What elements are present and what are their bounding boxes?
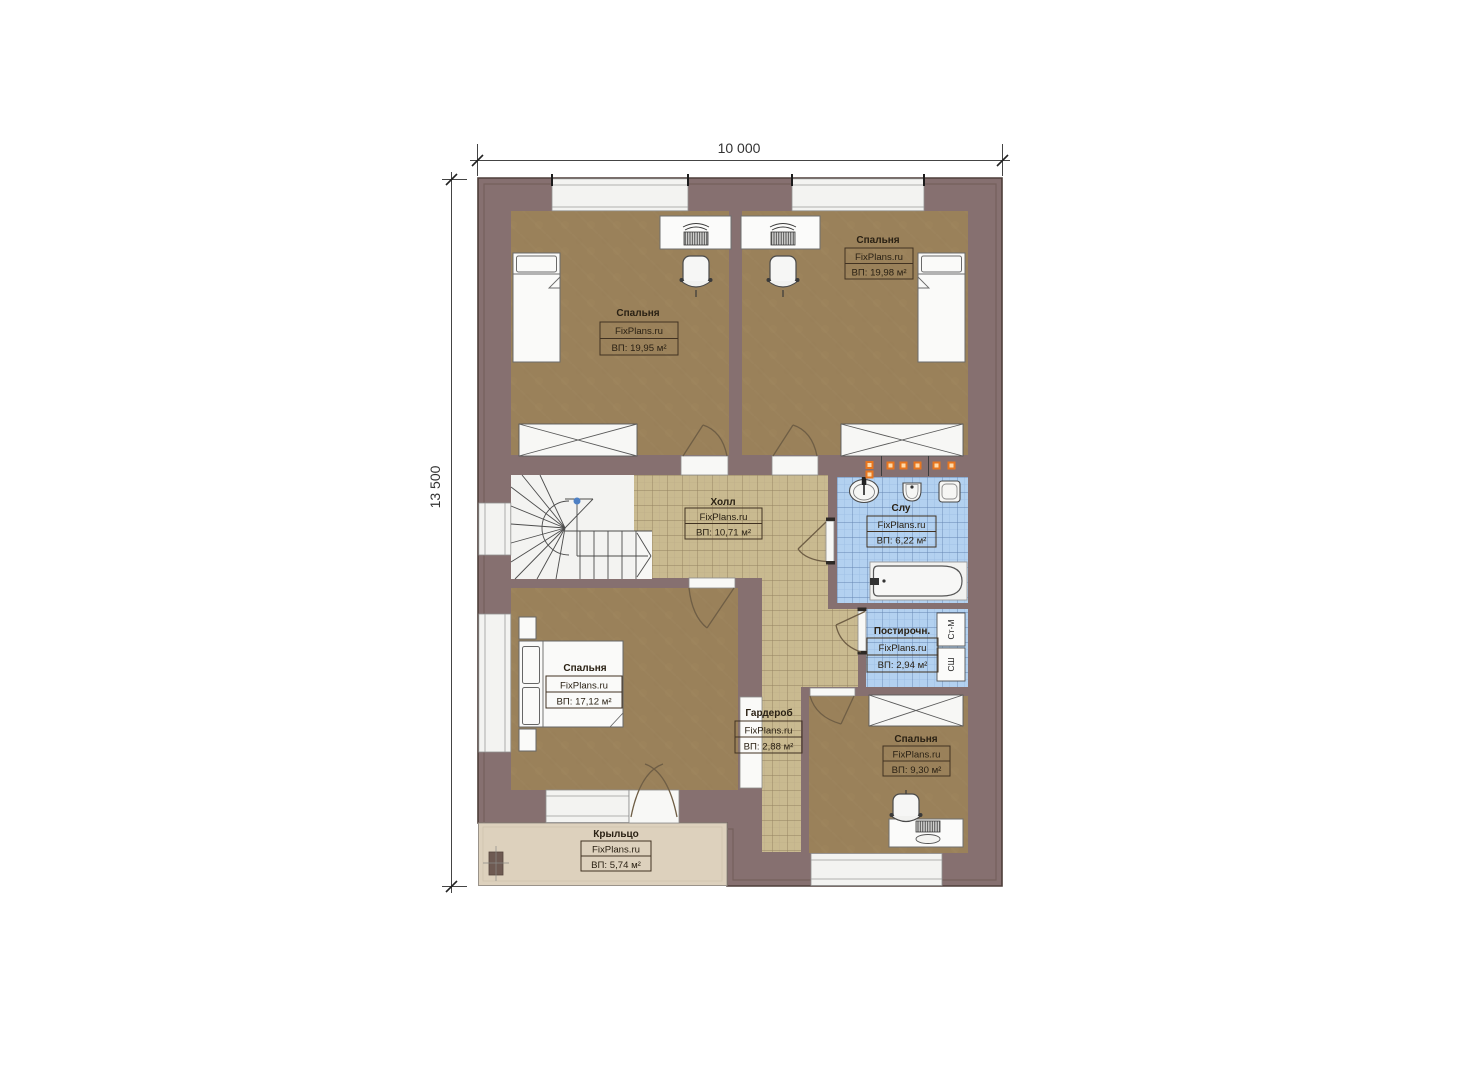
svg-text:Спальня: Спальня: [616, 308, 659, 319]
svg-text:FixPlans.ru: FixPlans.ru: [855, 252, 903, 263]
svg-text:FixPlans.ru: FixPlans.ru: [592, 845, 640, 856]
svg-text:Гардероб: Гардероб: [745, 707, 792, 719]
svg-text:ВП: 6,22 м²: ВП: 6,22 м²: [877, 536, 928, 547]
svg-text:10 000: 10 000: [718, 140, 761, 156]
svg-text:СШ: СШ: [946, 657, 956, 671]
svg-text:ВП: 17,12 м²: ВП: 17,12 м²: [556, 697, 612, 708]
svg-text:Слу: Слу: [891, 503, 910, 514]
svg-text:ВП: 2,94 м²: ВП: 2,94 м²: [878, 660, 929, 671]
svg-text:FixPlans.ru: FixPlans.ru: [878, 520, 926, 531]
svg-text:FixPlans.ru: FixPlans.ru: [893, 750, 941, 761]
svg-text:Спальня: Спальня: [894, 734, 937, 745]
svg-text:ВП: 19,98 м²: ВП: 19,98 м²: [851, 268, 907, 279]
svg-text:Холл: Холл: [710, 497, 735, 508]
svg-text:FixPlans.ru: FixPlans.ru: [700, 512, 748, 523]
svg-text:FixPlans.ru: FixPlans.ru: [745, 726, 793, 737]
svg-text:ВП: 9,30 м²: ВП: 9,30 м²: [892, 765, 943, 776]
svg-text:ВП: 2,88 м²: ВП: 2,88 м²: [744, 742, 795, 753]
svg-text:13 500: 13 500: [427, 465, 443, 508]
svg-text:ВП: 5,74 м²: ВП: 5,74 м²: [591, 860, 642, 871]
svg-text:Ст-М: Ст-М: [946, 620, 956, 640]
svg-text:FixPlans.ru: FixPlans.ru: [560, 681, 608, 692]
svg-text:ВП: 10,71 м²: ВП: 10,71 м²: [696, 528, 752, 539]
svg-text:FixPlans.ru: FixPlans.ru: [615, 326, 663, 337]
svg-text:Спальня: Спальня: [563, 663, 606, 674]
svg-text:Постирочн.: Постирочн.: [874, 626, 931, 637]
svg-text:FixPlans.ru: FixPlans.ru: [879, 643, 927, 654]
svg-text:Крыльцо: Крыльцо: [593, 829, 639, 840]
svg-text:ВП: 19,95 м²: ВП: 19,95 м²: [611, 343, 667, 354]
svg-text:Спальня: Спальня: [856, 235, 899, 246]
